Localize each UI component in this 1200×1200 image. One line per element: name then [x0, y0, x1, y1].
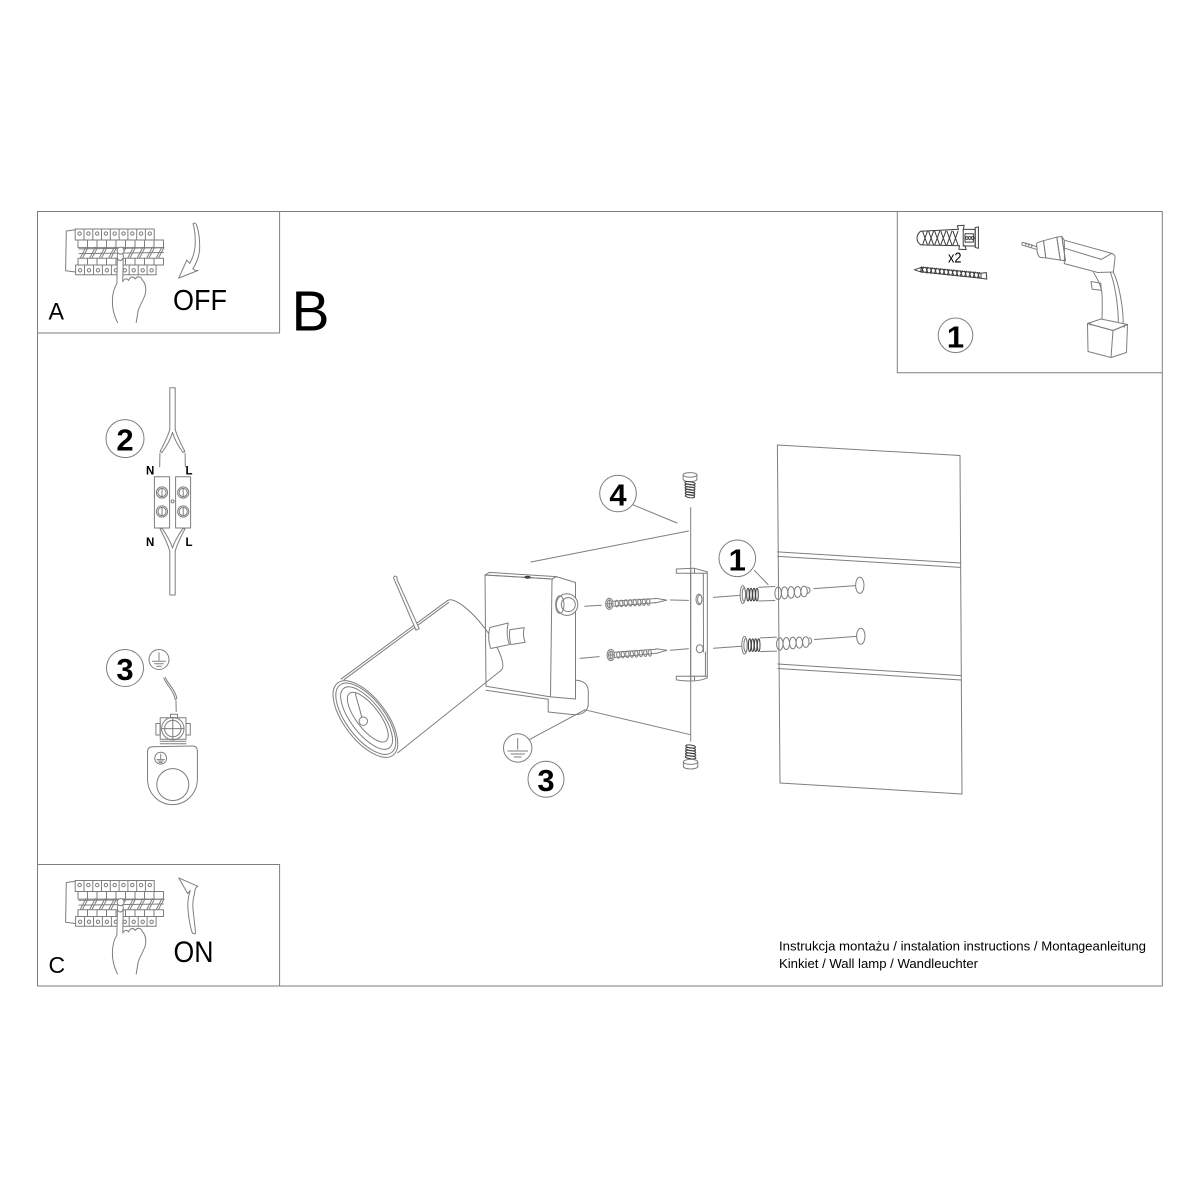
svg-text:OFF: OFF [173, 285, 227, 317]
svg-text:x2: x2 [948, 250, 962, 267]
svg-text:A: A [49, 299, 65, 326]
svg-text:B: B [292, 280, 330, 344]
svg-text:3: 3 [116, 652, 133, 687]
svg-text:Instrukcja montażu / instalati: Instrukcja montażu / instalation instruc… [779, 939, 1146, 954]
svg-text:C: C [49, 952, 66, 978]
svg-text:1: 1 [947, 319, 964, 354]
svg-text:N: N [146, 466, 154, 478]
svg-text:L: L [186, 537, 193, 549]
svg-text:1: 1 [729, 542, 746, 577]
svg-text:Kinkiet / Wall lamp / Wandleuc: Kinkiet / Wall lamp / Wandleuchter [779, 956, 979, 971]
svg-text:3: 3 [537, 763, 554, 798]
svg-text:4: 4 [609, 478, 627, 513]
svg-text:L: L [186, 466, 193, 478]
svg-text:ON: ON [174, 936, 214, 969]
svg-text:N: N [146, 537, 154, 549]
svg-text:2: 2 [116, 423, 133, 458]
